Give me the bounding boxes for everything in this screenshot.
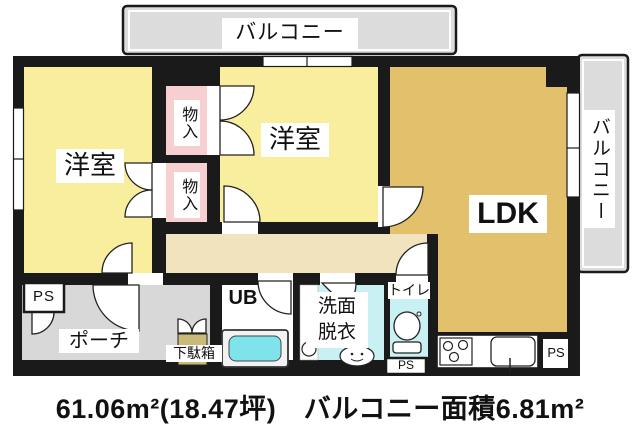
area-summary-text: 61.06m²(18.47坪) バルコニー面積6.81m² <box>0 388 640 424</box>
ps-kitchen-label: PS <box>544 345 568 362</box>
balcony-right-label: バルコニー <box>583 110 615 228</box>
closet-lower-doorway <box>152 163 166 218</box>
ldk-corner-notch <box>546 67 580 87</box>
balcony-top-label: バルコニー <box>222 18 358 49</box>
bathtub <box>222 330 288 367</box>
closet-lower-label: 物入 <box>174 172 200 218</box>
bedroom-left-label: 洋室 <box>56 149 124 183</box>
stove <box>440 338 472 365</box>
toilet-label: トイレ <box>388 282 430 299</box>
washroom-label-line2: 脱衣 <box>318 320 356 346</box>
porch-label: ポーチ <box>59 329 139 353</box>
closet-upper-doorway <box>207 86 220 155</box>
bedroom-left-door-opening <box>128 273 163 285</box>
bedroom-center-door-opening <box>222 222 258 234</box>
floor-plan: バルコニー バルコニー 洋室 洋室 物入 物入 LDK PS ポーチ 下駄箱 U… <box>0 0 640 428</box>
ldk-floor-lower <box>438 234 567 332</box>
window-right <box>567 93 580 197</box>
unit-bath-label: UB <box>224 287 262 309</box>
washroom-label-line1: 洗面 <box>318 294 356 320</box>
washing-machine <box>340 346 374 366</box>
closet-upper-label: 物入 <box>174 100 200 146</box>
ps-toilet-label: PS <box>393 359 419 373</box>
ps-left-label: PS <box>26 287 62 307</box>
ldk-label: LDK <box>469 195 547 233</box>
bedroom-center-label: 洋室 <box>261 123 329 157</box>
washroom-label: 洗面 脱衣 <box>306 292 368 348</box>
hallway-floor <box>166 234 427 273</box>
shoe-cabinet-label: 下駄箱 <box>166 345 222 362</box>
toilet <box>393 312 421 353</box>
